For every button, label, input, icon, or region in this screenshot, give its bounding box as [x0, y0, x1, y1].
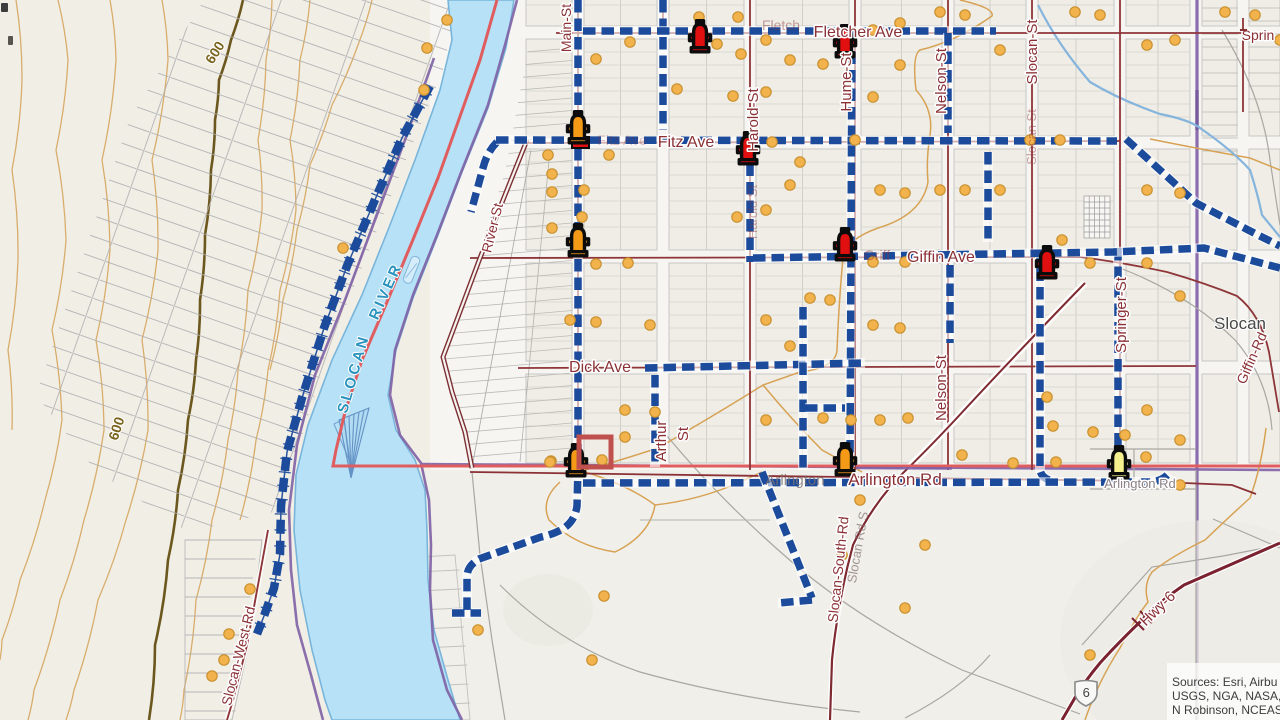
svg-text:Nelson-St: Nelson-St — [933, 354, 950, 421]
svg-text:Main-St: Main-St — [558, 4, 574, 52]
svg-text:Fletch: Fletch — [762, 17, 800, 33]
svg-text:Slocan St: Slocan St — [1024, 109, 1039, 165]
svg-text:Nelson-St: Nelson-St — [933, 47, 950, 114]
svg-text:Griff: Griff — [864, 247, 890, 263]
svg-text:Slocan-St: Slocan-St — [1024, 19, 1041, 85]
svg-text:St: St — [675, 426, 692, 441]
svg-text:Harold St: Harold St — [745, 185, 760, 240]
svg-text:Arlington Rd: Arlington Rd — [1104, 476, 1176, 491]
svg-text:Giffin Ave: Giffin Ave — [907, 249, 975, 266]
svg-text:Arthur: Arthur — [653, 421, 670, 462]
svg-text:Fitz Ave: Fitz Ave — [658, 134, 715, 151]
svg-text:Fletcher Ave: Fletcher Ave — [814, 24, 903, 41]
svg-text:Slocan: Slocan — [1214, 314, 1266, 333]
svg-text:Arlington: Arlington — [765, 472, 824, 489]
svg-text:Arlington Rd: Arlington Rd — [848, 470, 942, 489]
svg-text:Harold-St: Harold-St — [745, 87, 762, 151]
svg-text:Springer-St: Springer-St — [1113, 276, 1130, 353]
svg-text:N Robinson, NCEAS: N Robinson, NCEAS — [1172, 703, 1280, 717]
svg-text:USGS, NGA, NASA,: USGS, NGA, NASA, — [1172, 689, 1280, 703]
svg-text:6: 6 — [1083, 685, 1090, 700]
svg-text:Fitz Ave: Fitz Ave — [597, 132, 647, 148]
svg-text:Sources: Esri, Airbu: Sources: Esri, Airbu — [1172, 675, 1277, 689]
svg-text:Dick Ave: Dick Ave — [569, 359, 631, 376]
svg-text:Hume-St: Hume-St — [838, 52, 855, 112]
